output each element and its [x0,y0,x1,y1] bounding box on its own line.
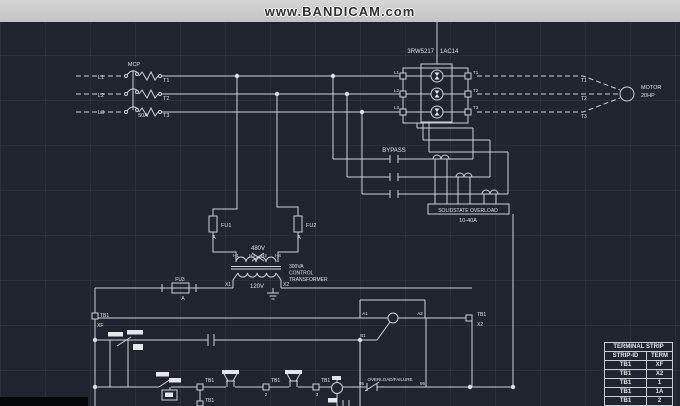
tb1-3-strip: TB1 [321,378,330,384]
starter-l2-label: L2 [394,88,400,93]
x1-label: X1 [225,282,231,288]
secondary-voltage: 120V [250,284,264,290]
motor-lead-lines [477,76,620,112]
fu2-fuse [294,216,302,232]
line3-in-label: L3 [98,110,104,116]
pole1-out-label: T1 [163,78,169,84]
soft-starter-block [400,22,471,123]
overload-nc-contact [365,382,379,391]
tb1-1-strip: TB1 [205,378,214,384]
selector-pivot [388,313,398,323]
tb1-1a-terminal [197,401,203,406]
starter-l3-label: L3 [394,105,400,110]
fu1-class: A [212,235,216,241]
mcp-label: MCP [128,62,141,68]
terminal-strip-cell: 2 [647,397,673,406]
terminal-strip-row: TB11A [605,388,673,397]
starter-t1-label: T1 [473,70,479,75]
tb1-1a-strip: TB1 [205,398,214,404]
overload-title: SOLIDSTATE OVERLOAD [438,208,498,214]
tb1-3-terminal [313,384,319,390]
xfmr-rating-1: 300VA [289,264,304,270]
terminal-strip-cell: TB1 [605,397,647,406]
starter-t3-label: T3 [473,105,479,110]
tb1-x2-term: X2 [477,322,483,328]
terminal-strip-cell: XF [647,361,673,370]
motor-name: MOTOR [641,85,661,91]
power-bus-lines [162,76,400,112]
terminal-strip-cell: TB1 [605,379,647,388]
column-term: TERM [647,352,673,361]
terminal-strip-row: TB12 [605,397,673,406]
control-circuit [92,214,513,406]
fu1-fuse [209,216,217,232]
mcp-breaker-symbol [125,70,162,116]
tb1-xf-strip: TB1 [100,313,109,319]
terminal-strip-cell: 1 [647,379,673,388]
bypass-contacts [390,155,398,198]
h3-label: H3 [249,253,255,258]
h4-label: H4 [275,253,281,258]
pushbutton-1 [222,370,239,387]
tb1-2-terminal [263,384,269,390]
starter-l1-label: L1 [394,70,400,75]
tb1-1-terminal [197,384,203,390]
fu2-label: FU2 [306,223,316,229]
b1-label: B1 [360,333,366,338]
motor-hp: 20HP [641,93,655,99]
line1-in-label: L1 [98,75,104,81]
ground-symbol [267,288,279,299]
fu2-class: A [297,235,301,241]
terminal-strip-cell: 1A [647,388,673,397]
cad-canvas[interactable]: MCPL1L2L3T1T2T350A3RW52171AC14L1L2L3T1T2… [0,0,680,406]
scr-symbols [431,70,443,118]
motor-t1-label: T1 [581,78,587,84]
x2-label: X2 [283,282,289,288]
secondary-winding [238,273,276,277]
current-transformer-coils [433,155,498,194]
electrical-schematic: MCPL1L2L3T1T2T350A3RW52171AC14L1L2L3T1T2… [0,0,680,406]
h1-label: H1 [233,253,239,258]
terminal-strip-title: TERMINAL STRIP [605,343,673,352]
line2-in-label: L2 [98,93,104,99]
bandicam-watermark: www.BANDICAM.com [0,0,680,22]
tb1-3-term: 3 [316,392,319,397]
column-strip-id: STRIP-ID [605,352,647,361]
schematic-text-labels: MCPL1L2L3T1T2T350A3RW52171AC14L1L2L3T1T2… [97,49,661,404]
terminal-strip-cell: X2 [647,370,673,379]
overload-range: 10-40A [459,218,477,224]
motor-t3-label: T3 [581,114,587,120]
pushbutton-2 [285,370,302,387]
overload-contact-label: OVERLOAD/FAILURE [367,377,412,382]
no-contact [208,334,214,346]
h2-label: H2 [261,253,267,258]
starter-model-right: 1AC14 [440,49,459,55]
transformer-core [231,267,281,270]
motor-symbol [620,87,634,101]
a1-label: A1 [362,311,368,316]
xfmr-rating-2: CONTROL [289,271,314,277]
pole3-out-label: T3 [163,113,169,119]
bypass-label: BYPASS [382,148,406,154]
terminal-strip-table: TERMINAL STRIP STRIP-ID TERM TB1XFTB1X2T… [604,342,674,406]
bandicam-watermark-text: www.BANDICAM.com [265,4,416,19]
tb1-x2-terminal [466,315,472,321]
terminal-strip-cell: TB1 [605,361,647,370]
fu3-label: FU3 [175,277,185,283]
switch-blade [117,337,131,346]
starter-model-left: 3RW5217 [407,49,434,55]
terminal-strip-row: TB1XF [605,361,673,370]
terminal-strip-cell: TB1 [605,370,647,379]
tb1-2-strip: TB1 [271,378,280,384]
tb1-xf-terminal [92,313,98,319]
terminal-strip-row: TB1X2 [605,370,673,379]
terminal-strip-row: TB11 [605,379,673,388]
xfmr-rating-3: TRANSFORMER [289,277,328,283]
primary-voltage: 480V [251,246,265,252]
breaker-rating: 50A [138,113,148,119]
starter-t2-label: T2 [473,88,479,93]
fu1-label: FU1 [221,223,231,229]
overload-contact-96: 96 [420,381,426,386]
a2-label: A2 [417,311,423,316]
tb1-x2-strip: TB1 [477,312,486,318]
motor-t2-label: T2 [581,96,587,102]
fu3-class: A [181,296,185,302]
bottom-left-letterbox [0,397,88,406]
terminal-strip-cell: TB1 [605,388,647,397]
overload-contact-95: 95 [359,381,365,386]
tb1-2-term: 2 [265,392,268,397]
terminal-strip-body: TB1XFTB1X2TB11TB11ATB12 [605,361,673,406]
tb1-xf-term: XF [97,323,103,329]
pole2-out-label: T2 [163,96,169,102]
